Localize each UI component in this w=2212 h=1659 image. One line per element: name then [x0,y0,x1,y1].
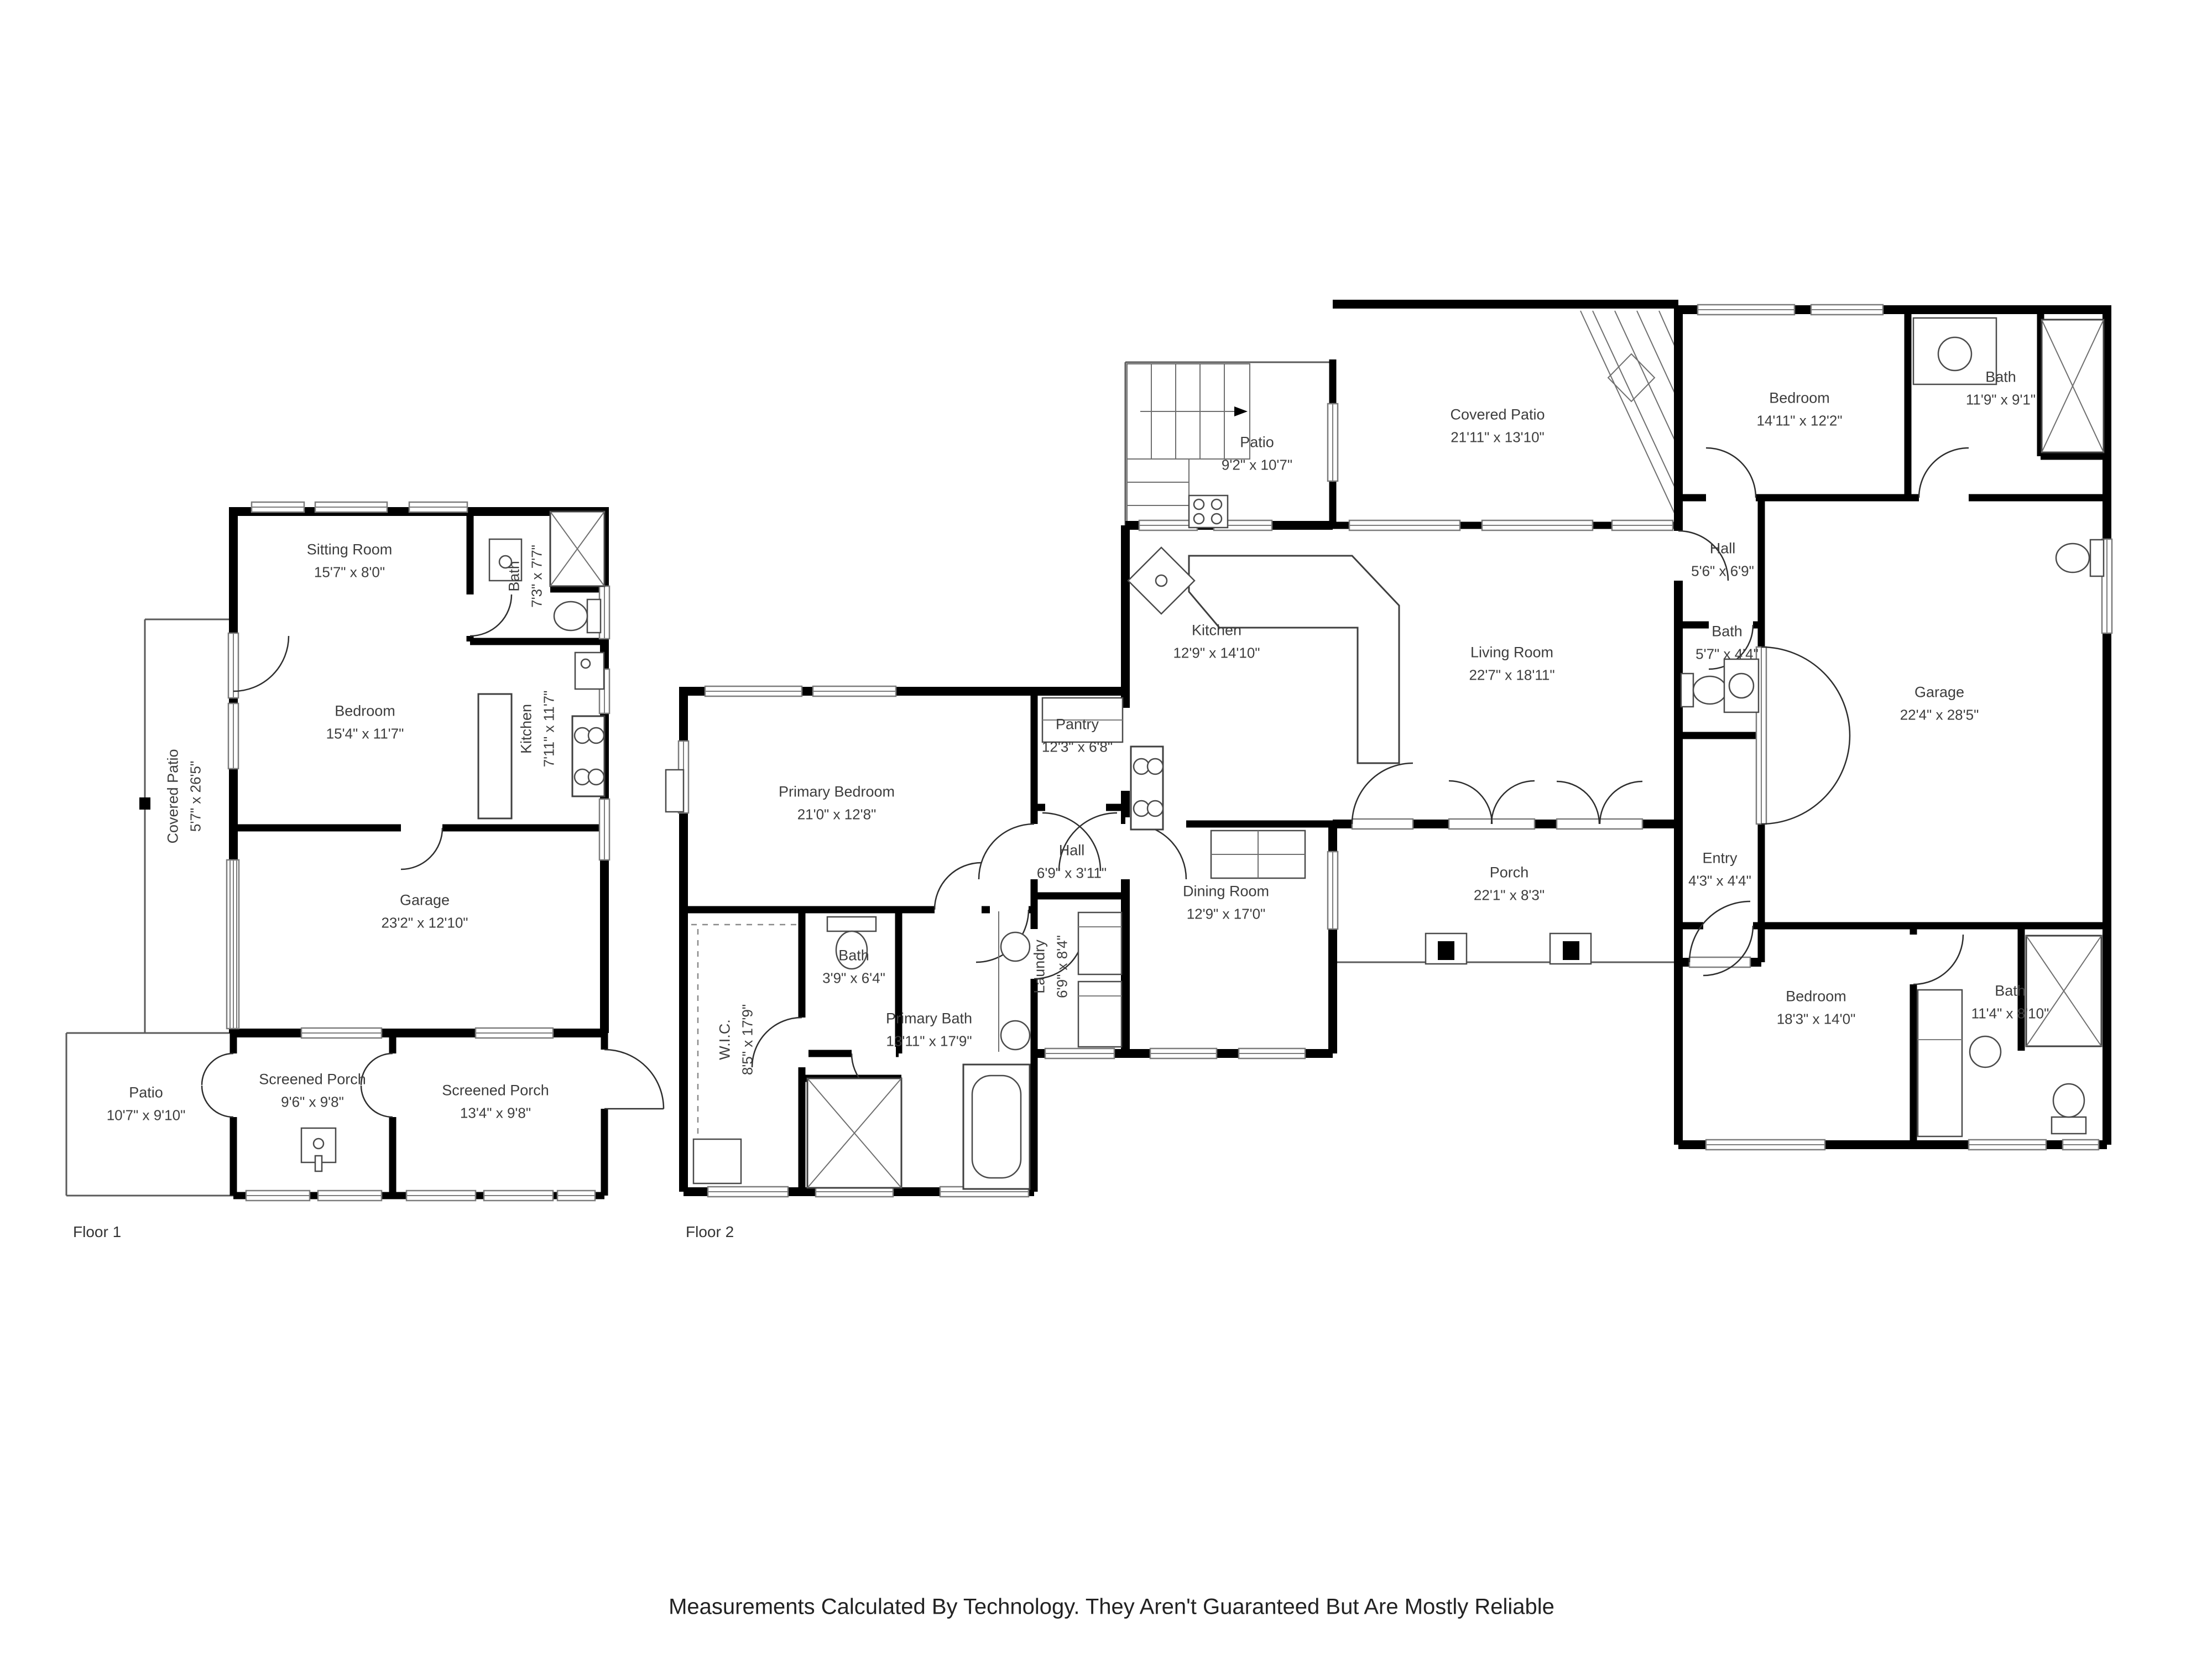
room-label-primary-bedroom: Primary Bedroom21'0" x 12'8" [779,782,895,824]
room-name: Primary Bath [886,1009,972,1029]
room-label-bath-small: Bath5'7" x 4'4" [1695,622,1759,664]
room-label-patio-f1: Patio10'7" x 9'10" [107,1083,186,1125]
room-label-screened-porch-2: Screened Porch13'4" x 9'8" [442,1081,549,1123]
room-label-hall-left: Hall6'9" x 3'11" [1037,841,1107,883]
room-name: Hall [1691,539,1754,559]
room-name: Bedroom [326,702,404,722]
room-name: Bath [505,545,525,608]
room-dimensions: 9'6" x 9'8" [259,1092,366,1111]
room-label-primary-bath: Primary Bath13'11" x 17'9" [886,1009,972,1051]
room-dimensions: 6'9" x 3'11" [1037,863,1107,882]
room-label-entry: Entry4'3" x 4'4" [1688,849,1751,890]
room-name: Bath [1971,982,2049,1001]
room-dimensions: 13'4" x 9'8" [442,1103,549,1122]
room-label-garage-f1: Garage23'2" x 12'10" [381,891,468,932]
room-dimensions: 11'9" x 9'1" [1966,390,2036,409]
room-label-kitchen-f2: Kitchen12'9" x 14'10" [1173,621,1260,662]
room-name: Bath [822,946,885,966]
label-layer: Floor 1Sitting Room15'7" x 8'0"Bath7'3" … [0,0,2212,1659]
room-dimensions: 15'4" x 11'7" [326,724,404,743]
room-label-covered-patio-f1: Covered Patio5'7" x 26'5" [164,749,205,843]
room-label-wic: W.I.C.8'5" x 17'9" [716,1004,757,1075]
room-dimensions: 9'2" x 10'7" [1222,455,1292,474]
room-label-hall-right: Hall5'6" x 6'9" [1691,539,1754,581]
room-name: Covered Patio [1450,405,1545,425]
room-name: Screened Porch [442,1081,549,1101]
room-name: Garage [1900,683,1979,703]
room-dimensions: 8'5" x 17'9" [738,1004,757,1075]
room-name: Sitting Room [307,540,393,560]
room-dimensions: 7'3" x 7'7" [527,545,546,608]
floor-caption-1: Floor 1 [73,1223,121,1241]
room-name: Porch [1474,863,1545,883]
room-dimensions: 5'7" x 26'5" [186,749,205,843]
room-label-laundry: Laundry6'9" x 8'4" [1030,935,1072,998]
room-dimensions: 11'4" x 8'10" [1971,1004,2049,1022]
room-name: Laundry [1030,935,1050,998]
room-name: Dining Room [1183,882,1269,902]
room-label-screened-porch-1: Screened Porch9'6" x 9'8" [259,1070,366,1112]
room-label-bedroom-bottom-right: Bedroom18'3" x 14'0" [1777,987,1856,1029]
disclaimer-text: Measurements Calculated By Technology. T… [669,1595,1554,1620]
room-name: Bedroom [1777,987,1856,1007]
room-label-living-room: Living Room22'7" x 18'11" [1469,643,1554,685]
room-label-pantry: Pantry12'3" x 6'8" [1042,715,1113,757]
room-label-patio-f2: Patio9'2" x 10'7" [1222,433,1292,474]
room-dimensions: 22'7" x 18'11" [1469,665,1554,684]
room-dimensions: 22'4" x 28'5" [1900,705,1979,724]
room-name: W.I.C. [716,1004,735,1075]
room-label-garage-f2: Garage22'4" x 28'5" [1900,683,1979,724]
room-name: Bath [1695,622,1759,642]
room-name: Bath [1966,368,2036,388]
room-dimensions: 3'9" x 6'4" [822,968,885,987]
room-label-covered-patio-f2: Covered Patio21'11" x 13'10" [1450,405,1545,447]
room-dimensions: 7'11" x 11'7" [539,691,558,768]
room-dimensions: 18'3" x 14'0" [1777,1009,1856,1028]
room-label-bath-top-right: Bath11'9" x 9'1" [1966,368,2036,409]
room-label-kitchen-f1: Kitchen7'11" x 11'7" [517,691,559,768]
room-name: Living Room [1469,643,1554,663]
room-dimensions: 13'11" x 17'9" [886,1031,972,1050]
room-name: Covered Patio [164,749,184,843]
room-name: Kitchen [517,691,537,768]
room-dimensions: 5'6" x 6'9" [1691,561,1754,580]
room-label-bath-39: Bath3'9" x 6'4" [822,946,885,988]
room-dimensions: 5'7" x 4'4" [1695,644,1759,663]
room-dimensions: 21'11" x 13'10" [1450,427,1545,446]
room-dimensions: 12'3" x 6'8" [1042,737,1113,756]
room-name: Hall [1037,841,1107,861]
room-dimensions: 6'9" x 8'4" [1052,935,1071,998]
room-dimensions: 22'1" x 8'3" [1474,885,1545,904]
room-label-bath-bottom-right: Bath11'4" x 8'10" [1971,982,2049,1023]
room-name: Bedroom [1756,389,1842,409]
room-name: Screened Porch [259,1070,366,1090]
room-dimensions: 23'2" x 12'10" [381,913,468,932]
room-label-bedroom-top-right: Bedroom14'11" x 12'2" [1756,389,1842,430]
room-dimensions: 15'7" x 8'0" [307,562,393,581]
room-dimensions: 14'11" x 12'2" [1756,411,1842,430]
room-label-porch: Porch22'1" x 8'3" [1474,863,1545,905]
room-label-bedroom-f1: Bedroom15'4" x 11'7" [326,702,404,743]
room-name: Patio [107,1083,186,1103]
room-name: Patio [1222,433,1292,453]
room-name: Pantry [1042,715,1113,735]
room-name: Garage [381,891,468,911]
room-label-sitting-room: Sitting Room15'7" x 8'0" [307,540,393,582]
room-dimensions: 4'3" x 4'4" [1688,871,1751,890]
room-dimensions: 12'9" x 17'0" [1183,904,1269,923]
room-label-bath-f1: Bath7'3" x 7'7" [505,545,546,608]
floor-caption-2: Floor 2 [686,1223,734,1241]
floor-plan-page: Floor 1Sitting Room15'7" x 8'0"Bath7'3" … [0,0,2212,1659]
room-dimensions: 12'9" x 14'10" [1173,643,1260,662]
room-name: Entry [1688,849,1751,869]
room-dimensions: 21'0" x 12'8" [779,805,895,823]
room-label-dining-room: Dining Room12'9" x 17'0" [1183,882,1269,924]
room-name: Primary Bedroom [779,782,895,802]
room-dimensions: 10'7" x 9'10" [107,1105,186,1124]
room-name: Kitchen [1173,621,1260,641]
